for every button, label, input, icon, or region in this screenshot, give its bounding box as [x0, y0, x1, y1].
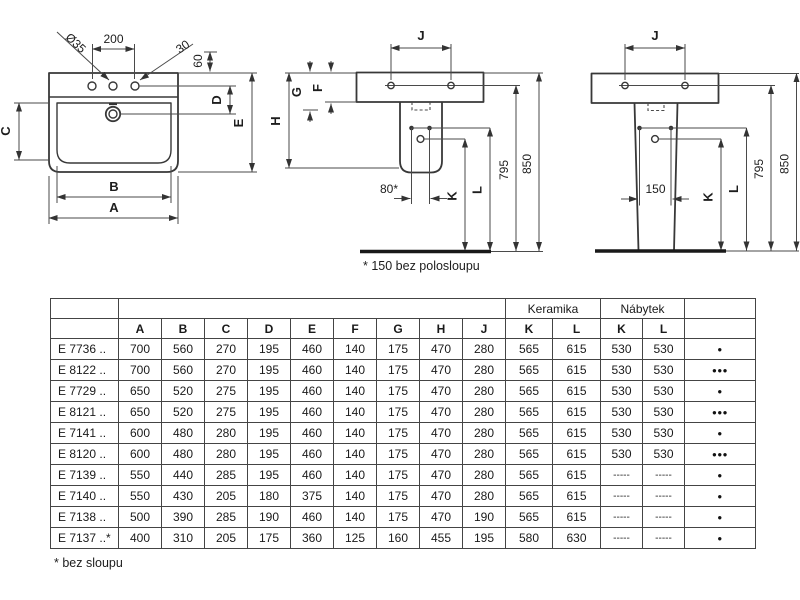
value-cell: 560 [162, 360, 205, 381]
front-view-drawing: Ø35 200 30 60 D E C B [0, 30, 257, 224]
value-cell: 520 [162, 381, 205, 402]
dim-label-k: K [445, 191, 460, 201]
value-cell: 375 [291, 486, 334, 507]
value-cell: 530 [643, 381, 685, 402]
value-cell: 700 [119, 339, 162, 360]
table-row: E 7729 ..6505202751954601401754702805656… [51, 381, 756, 402]
value-cell: 190 [463, 507, 506, 528]
value-cell: 195 [248, 423, 291, 444]
dim-label-l: L [726, 185, 741, 193]
value-cell: 140 [334, 381, 377, 402]
dim-label-795: 795 [752, 159, 766, 179]
value-cell: 140 [334, 507, 377, 528]
model-cell: E 7736 .. [51, 339, 119, 360]
value-cell: 310 [162, 528, 205, 549]
value-cell: 195 [248, 444, 291, 465]
value-cell: 195 [248, 465, 291, 486]
dim-label-80: 80* [380, 182, 398, 196]
table-group-header-row: KeramikaNábytek [51, 299, 756, 319]
column-header-cell: G [377, 319, 420, 339]
value-cell: 140 [334, 339, 377, 360]
value-cell: 530 [643, 444, 685, 465]
value-cell: 470 [420, 444, 463, 465]
value-cell: 175 [377, 486, 420, 507]
column-header-cell: A [119, 319, 162, 339]
value-cell: ----- [643, 528, 685, 549]
value-cell: 650 [119, 381, 162, 402]
value-cell: 460 [291, 339, 334, 360]
concealed-fixing-box [648, 103, 664, 111]
availability-cell: ●●● [685, 444, 756, 465]
value-cell: 615 [553, 444, 601, 465]
value-cell: 630 [553, 528, 601, 549]
value-cell: 140 [334, 465, 377, 486]
availability-cell: ● [685, 465, 756, 486]
availability-cell: ●●● [685, 402, 756, 423]
column-header-cell: J [463, 319, 506, 339]
value-cell: 140 [334, 486, 377, 507]
value-cell: 455 [420, 528, 463, 549]
dim-label-h: H [268, 116, 283, 125]
value-cell: 175 [248, 528, 291, 549]
dim-label-l: L [470, 186, 485, 194]
column-header-cell [685, 319, 756, 339]
value-cell: 175 [377, 507, 420, 528]
table-row: E 7139 ..5504402851954601401754702805656… [51, 465, 756, 486]
dim-label-k: K [701, 192, 716, 202]
value-cell: 470 [420, 360, 463, 381]
value-cell: 175 [377, 360, 420, 381]
dim-label-60: 60 [191, 54, 205, 68]
dim-label-850: 850 [778, 154, 792, 174]
value-cell: 530 [601, 423, 643, 444]
value-cell: 280 [205, 444, 248, 465]
value-cell: 195 [248, 381, 291, 402]
value-cell: 430 [162, 486, 205, 507]
table-column-header-row: ABCDEFGHJKLKL [51, 319, 756, 339]
model-cell: E 7729 .. [51, 381, 119, 402]
group-header-cell [119, 299, 506, 319]
dim-label-f: F [310, 84, 325, 92]
value-cell: 470 [420, 402, 463, 423]
group-header-cell: Keramika [506, 299, 601, 319]
dim-label-200: 200 [103, 32, 123, 46]
value-cell: 520 [162, 402, 205, 423]
model-cell: E 7141 .. [51, 423, 119, 444]
value-cell: 190 [248, 507, 291, 528]
value-cell: 140 [334, 423, 377, 444]
value-cell: 160 [377, 528, 420, 549]
dim-label-30: 30 [173, 37, 192, 56]
value-cell: ----- [601, 528, 643, 549]
value-cell: 280 [463, 381, 506, 402]
table-row: E 8122 ..7005602701954601401754702805656… [51, 360, 756, 381]
column-header-cell: L [553, 319, 601, 339]
table-row: E 8121 ..6505202751954601401754702805656… [51, 402, 756, 423]
value-cell: 280 [463, 423, 506, 444]
availability-cell: ● [685, 339, 756, 360]
value-cell: 175 [377, 402, 420, 423]
value-cell: 470 [420, 381, 463, 402]
column-header-cell: L [643, 319, 685, 339]
value-cell: 270 [205, 339, 248, 360]
dim-label-j: J [417, 28, 424, 43]
dimension-table: KeramikaNábytekABCDEFGHJKLKL E 7736 ..70… [50, 298, 756, 549]
value-cell: 280 [205, 423, 248, 444]
value-cell: 550 [119, 465, 162, 486]
washbasin-spec-sheet: Ø35 200 30 60 D E C B [0, 0, 800, 600]
washbasin-side-outline [357, 73, 484, 103]
value-cell: 360 [291, 528, 334, 549]
value-cell: 650 [119, 402, 162, 423]
group-header-cell [51, 299, 119, 319]
value-cell: ----- [643, 486, 685, 507]
column-header-cell: K [506, 319, 553, 339]
value-cell: ----- [601, 486, 643, 507]
availability-cell: ● [685, 381, 756, 402]
value-cell: 195 [248, 360, 291, 381]
value-cell: 615 [553, 423, 601, 444]
value-cell: ----- [643, 465, 685, 486]
washbasin-side-outline [592, 74, 719, 104]
value-cell: 175 [377, 339, 420, 360]
value-cell: 460 [291, 381, 334, 402]
value-cell: 390 [162, 507, 205, 528]
dim-label-a: A [109, 200, 119, 215]
value-cell: 615 [553, 402, 601, 423]
value-cell: 280 [463, 339, 506, 360]
column-header-cell: F [334, 319, 377, 339]
value-cell: 530 [643, 360, 685, 381]
table-row: E 8120 ..6004802801954601401754702805656… [51, 444, 756, 465]
value-cell: 565 [506, 507, 553, 528]
value-cell: 440 [162, 465, 205, 486]
value-cell: 530 [601, 360, 643, 381]
value-cell: 530 [601, 444, 643, 465]
value-cell: 180 [248, 486, 291, 507]
value-cell: 470 [420, 486, 463, 507]
value-cell: 460 [291, 423, 334, 444]
value-cell: 460 [291, 507, 334, 528]
value-cell: 530 [643, 423, 685, 444]
model-cell: E 7139 .. [51, 465, 119, 486]
column-header-cell [51, 319, 119, 339]
value-cell: 530 [643, 402, 685, 423]
value-cell: 600 [119, 444, 162, 465]
value-cell: 580 [506, 528, 553, 549]
value-cell: 205 [205, 486, 248, 507]
value-cell: 500 [119, 507, 162, 528]
dim-label-150: 150 [645, 182, 665, 196]
value-cell: 275 [205, 381, 248, 402]
tap-holes [88, 82, 139, 90]
table-row: E 7138 ..5003902851904601401754701905656… [51, 507, 756, 528]
model-cell: E 7138 .. [51, 507, 119, 528]
value-cell: 565 [506, 381, 553, 402]
value-cell: 530 [601, 339, 643, 360]
value-cell: 470 [420, 507, 463, 528]
value-cell: ----- [601, 465, 643, 486]
dim-label-c: C [0, 126, 13, 136]
value-cell: 140 [334, 402, 377, 423]
value-cell: 195 [248, 339, 291, 360]
value-cell: 615 [553, 360, 601, 381]
value-cell: 460 [291, 444, 334, 465]
value-cell: 470 [420, 339, 463, 360]
dim-label-e: E [231, 118, 246, 127]
value-cell: 560 [162, 339, 205, 360]
value-cell: 280 [463, 360, 506, 381]
side-view-pedestal-drawing: J 150 K L 795 850 [592, 28, 800, 251]
value-cell: ----- [601, 507, 643, 528]
concealed-fixing-box [412, 102, 430, 110]
dim-label-d: D [209, 95, 224, 104]
value-cell: 565 [506, 486, 553, 507]
dim-label-795: 795 [497, 160, 511, 180]
value-cell: 285 [205, 507, 248, 528]
table-row: E 7140 ..5504302051803751401754702805656… [51, 486, 756, 507]
semi-pedestal-note: * 150 bez polosloupu [363, 259, 480, 273]
value-cell: 280 [463, 444, 506, 465]
dim-label-850: 850 [520, 154, 534, 174]
value-cell: 615 [553, 507, 601, 528]
dim-label-hole-diameter: Ø35 [63, 30, 89, 56]
value-cell: 175 [377, 423, 420, 444]
value-cell: 565 [506, 360, 553, 381]
table-header: KeramikaNábytekABCDEFGHJKLKL [51, 299, 756, 339]
value-cell: 615 [553, 486, 601, 507]
availability-cell: ● [685, 507, 756, 528]
value-cell: 600 [119, 423, 162, 444]
dim-label-b: B [109, 179, 118, 194]
value-cell: 285 [205, 465, 248, 486]
value-cell: 140 [334, 444, 377, 465]
value-cell: 205 [205, 528, 248, 549]
value-cell: 615 [553, 381, 601, 402]
dim-label-g: G [289, 87, 304, 97]
value-cell: 175 [377, 381, 420, 402]
value-cell: 470 [420, 465, 463, 486]
column-header-cell: B [162, 319, 205, 339]
group-header-cell [685, 299, 756, 319]
column-header-cell: D [248, 319, 291, 339]
value-cell: 700 [119, 360, 162, 381]
value-cell: 195 [248, 402, 291, 423]
value-cell: 460 [291, 402, 334, 423]
availability-cell: ● [685, 423, 756, 444]
value-cell: 175 [377, 465, 420, 486]
technical-drawings: Ø35 200 30 60 D E C B [0, 0, 800, 292]
spec-table-body: E 7736 ..7005602701954601401754702805656… [51, 339, 756, 549]
value-cell: 565 [506, 444, 553, 465]
table-row: E 7137 ..*400310205175360125160455195580… [51, 528, 756, 549]
value-cell: 480 [162, 423, 205, 444]
availability-cell: ● [685, 528, 756, 549]
value-cell: 400 [119, 528, 162, 549]
dim-label-j: J [651, 28, 658, 43]
model-cell: E 8120 .. [51, 444, 119, 465]
column-header-cell: E [291, 319, 334, 339]
value-cell: 175 [377, 444, 420, 465]
value-cell: 275 [205, 402, 248, 423]
group-header-cell: Nábytek [601, 299, 685, 319]
table-footnote: * bez sloupu [54, 556, 123, 570]
model-cell: E 7137 ..* [51, 528, 119, 549]
value-cell: 280 [463, 402, 506, 423]
semi-pedestal-outline [400, 102, 442, 173]
side-view-semi-pedestal-drawing: J 80* H G F K [268, 28, 543, 273]
value-cell: 565 [506, 339, 553, 360]
value-cell: ----- [643, 507, 685, 528]
table-row: E 7141 ..6004802801954601401754702805656… [51, 423, 756, 444]
value-cell: 550 [119, 486, 162, 507]
value-cell: 195 [463, 528, 506, 549]
column-header-cell: H [420, 319, 463, 339]
value-cell: 565 [506, 402, 553, 423]
value-cell: 530 [601, 381, 643, 402]
value-cell: 125 [334, 528, 377, 549]
value-cell: 565 [506, 465, 553, 486]
column-header-cell: K [601, 319, 643, 339]
value-cell: 140 [334, 360, 377, 381]
washbasin-outline [49, 73, 178, 172]
value-cell: 615 [553, 465, 601, 486]
value-cell: 280 [463, 486, 506, 507]
value-cell: 480 [162, 444, 205, 465]
availability-cell: ●●● [685, 360, 756, 381]
value-cell: 270 [205, 360, 248, 381]
value-cell: 530 [601, 402, 643, 423]
value-cell: 460 [291, 360, 334, 381]
basin-inner-outline [57, 103, 171, 163]
value-cell: 565 [506, 423, 553, 444]
column-header-cell: C [205, 319, 248, 339]
value-cell: 530 [643, 339, 685, 360]
value-cell: 280 [463, 465, 506, 486]
value-cell: 460 [291, 465, 334, 486]
value-cell: 470 [420, 423, 463, 444]
table-row: E 7736 ..7005602701954601401754702805656… [51, 339, 756, 360]
model-cell: E 8122 .. [51, 360, 119, 381]
model-cell: E 8121 .. [51, 402, 119, 423]
model-cell: E 7140 .. [51, 486, 119, 507]
value-cell: 615 [553, 339, 601, 360]
availability-cell: ● [685, 486, 756, 507]
